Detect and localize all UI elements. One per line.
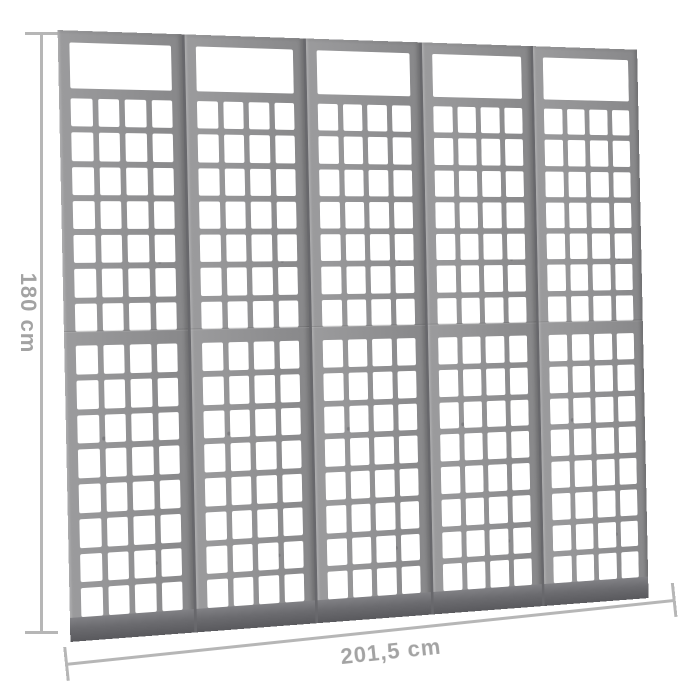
trellis-opening (617, 364, 635, 390)
trellis-opening (158, 412, 179, 441)
trellis-opening (350, 471, 370, 499)
trellis-opening (371, 299, 391, 326)
trellis-opening (225, 201, 246, 228)
trellis-opening (373, 404, 393, 432)
trellis-opening (202, 342, 223, 370)
trellis-opening (593, 295, 611, 321)
trellis-opening (592, 234, 610, 260)
trellis-opening (613, 172, 631, 198)
trellis-opening (282, 474, 302, 503)
trellis-opening (275, 169, 295, 196)
trellis-opening (259, 575, 280, 604)
trellis-opening (226, 268, 247, 296)
panel-top-window (432, 54, 522, 99)
trellis-opening (573, 397, 591, 424)
trellis-opening (466, 529, 485, 557)
trellis-opening (204, 444, 225, 473)
trellis-opening (258, 542, 279, 571)
divider-panel-4 (422, 42, 542, 614)
trellis-opening (490, 560, 509, 588)
trellis-opening (569, 203, 587, 229)
trellis-opening (76, 345, 98, 374)
trellis-opening (200, 268, 221, 296)
trellis-opening (571, 334, 589, 361)
trellis-opening (152, 134, 173, 162)
trellis-opening (231, 510, 252, 539)
trellis-opening (104, 379, 126, 408)
trellis-opening (590, 141, 608, 167)
trellis-opening (505, 139, 524, 165)
trellis-opening (512, 495, 531, 522)
trellis-opening (509, 367, 528, 394)
trellis-opening (153, 201, 174, 229)
trellis-opening (76, 380, 98, 409)
trellis-opening (350, 438, 370, 466)
trellis-opening (507, 265, 526, 291)
trellis-opening (254, 375, 275, 403)
trellis-opening (463, 401, 482, 428)
trellis-opening (489, 528, 508, 556)
trellis-opening (368, 169, 388, 196)
trellis-opening (481, 107, 500, 133)
trellis-opening (324, 406, 344, 434)
trellis-opening (347, 339, 367, 367)
upper-trellis-grid (544, 109, 634, 323)
trellis-opening (159, 446, 180, 475)
trellis-opening (377, 567, 397, 595)
trellis-opening (511, 431, 530, 458)
trellis-opening (226, 235, 247, 263)
trellis-opening (614, 234, 632, 260)
trellis-opening (131, 412, 153, 441)
trellis-opening (504, 108, 523, 134)
trellis-opening (157, 377, 178, 406)
trellis-opening (249, 102, 270, 130)
trellis-opening (549, 366, 568, 393)
trellis-opening (400, 533, 420, 561)
trellis-opening (75, 303, 97, 332)
trellis-opening (352, 536, 372, 564)
trellis-opening (489, 496, 508, 524)
trellis-opening (462, 337, 481, 364)
height-dimension-top-cap (25, 32, 58, 35)
trellis-opening (323, 340, 343, 368)
trellis-opening (326, 505, 346, 533)
trellis-opening (256, 475, 277, 504)
trellis-opening (78, 449, 100, 479)
trellis-opening (572, 366, 590, 393)
panel-top-window (317, 50, 411, 96)
trellis-opening (592, 265, 610, 291)
trellis-opening (206, 511, 227, 540)
trellis-opening (551, 429, 570, 456)
trellis-opening (257, 508, 278, 537)
trellis-opening (615, 295, 633, 321)
trellis-opening (549, 335, 568, 362)
trellis-opening (440, 434, 459, 462)
trellis-opening (589, 110, 607, 136)
trellis-opening (463, 369, 482, 396)
trellis-opening (100, 201, 122, 229)
trellis-opening (621, 551, 639, 578)
trellis-opening (130, 344, 152, 373)
trellis-opening (352, 569, 372, 598)
trellis-opening (203, 410, 224, 439)
upper-trellis-grid (433, 106, 526, 324)
trellis-opening (464, 433, 483, 460)
trellis-opening (513, 559, 532, 587)
trellis-opening (255, 408, 276, 436)
trellis-opening (277, 234, 297, 261)
trellis-opening (395, 266, 415, 293)
trellis-opening (133, 481, 155, 510)
trellis-opening (161, 582, 182, 612)
trellis-opening (401, 566, 421, 594)
trellis-opening (376, 535, 396, 563)
trellis-opening (465, 497, 484, 525)
height-dimension-label: 180 cm (15, 273, 41, 354)
trellis-opening (323, 373, 343, 401)
trellis-opening (458, 170, 477, 196)
trellis-opening (129, 302, 151, 330)
trellis-opening (573, 428, 591, 455)
trellis-opening (507, 234, 526, 260)
trellis-opening (200, 235, 221, 263)
trellis-opening (156, 343, 177, 372)
trellis-opening (599, 553, 617, 580)
trellis-opening (485, 297, 504, 323)
trellis-opening (128, 269, 150, 297)
trellis-opening (375, 502, 395, 530)
trellis-opening (439, 402, 458, 429)
trellis-opening (442, 531, 461, 559)
trellis-opening (223, 102, 244, 130)
trellis-opening (392, 137, 412, 164)
trellis-opening (487, 432, 506, 459)
trellis-opening (275, 136, 295, 163)
trellis-opening (133, 515, 155, 545)
trellis-opening (256, 442, 277, 471)
trellis-opening (482, 171, 501, 197)
trellis-opening (224, 168, 245, 196)
trellis-opening (594, 334, 612, 360)
trellis-opening (151, 100, 172, 128)
trellis-opening (457, 107, 476, 134)
trellis-opening (280, 374, 300, 402)
lower-trellis-grid (549, 333, 639, 583)
trellis-opening (612, 110, 630, 136)
trellis-opening (318, 104, 338, 131)
trellis-opening (159, 480, 180, 509)
trellis-opening (612, 141, 630, 167)
trellis-opening (483, 202, 502, 228)
trellis-opening (545, 140, 564, 166)
trellis-opening (104, 413, 126, 442)
trellis-opening (508, 297, 527, 323)
trellis-opening (153, 167, 174, 195)
trellis-opening (571, 296, 589, 322)
trellis-opening (206, 545, 227, 574)
trellis-opening (201, 301, 222, 329)
trellis-opening (394, 234, 414, 261)
trellis-opening (567, 140, 585, 166)
room-divider-tilt (58, 16, 700, 642)
trellis-opening (400, 501, 420, 529)
divider-panel-5 (533, 46, 649, 606)
trellis-opening (231, 476, 252, 505)
trellis-opening (348, 372, 368, 400)
trellis-opening (349, 405, 369, 433)
trellis-opening (510, 399, 529, 426)
trellis-opening (509, 335, 528, 362)
upper-trellis-grid (71, 98, 177, 331)
trellis-opening (443, 563, 462, 591)
trellis-opening (569, 234, 587, 260)
upper-trellis-grid (318, 104, 415, 327)
trellis-opening (207, 579, 228, 608)
trellis-opening (230, 443, 251, 472)
trellis-opening (325, 472, 345, 500)
trellis-opening (369, 202, 389, 229)
trellis-opening (126, 167, 148, 195)
trellis-opening (74, 269, 96, 297)
trellis-opening (511, 463, 530, 490)
trellis-opening (615, 264, 633, 290)
trellis-opening (224, 135, 245, 163)
trellis-opening (278, 300, 298, 328)
trellis-opening (396, 338, 416, 365)
trellis-opening (233, 577, 254, 606)
trellis-opening (371, 266, 391, 293)
trellis-opening (488, 464, 507, 491)
trellis-opening (460, 234, 479, 260)
trellis-opening (81, 587, 103, 617)
trellis-opening (127, 235, 149, 263)
trellis-opening (319, 169, 339, 196)
trellis-opening (439, 369, 458, 396)
trellis-opening (77, 414, 99, 443)
trellis-opening (198, 134, 219, 162)
trellis-opening (619, 458, 637, 485)
trellis-opening (461, 297, 480, 324)
divider-panel-1 (58, 30, 195, 642)
trellis-opening (591, 203, 609, 229)
room-divider-panels (58, 30, 649, 642)
trellis-opening (620, 489, 638, 516)
trellis-opening (613, 203, 631, 228)
trellis-opening (345, 234, 365, 261)
trellis-opening (107, 551, 129, 581)
trellis-opening (550, 398, 569, 425)
trellis-opening (154, 235, 175, 263)
trellis-opening (574, 460, 592, 487)
trellis-opening (277, 267, 297, 294)
trellis-opening (322, 299, 342, 326)
trellis-opening (441, 499, 460, 527)
trellis-opening (575, 491, 593, 518)
trellis-opening (343, 104, 363, 131)
trellis-opening (595, 365, 613, 392)
panel-top-window (196, 46, 294, 93)
trellis-opening (105, 448, 127, 477)
trellis-opening (568, 171, 586, 197)
divider-panel-3 (306, 38, 431, 623)
trellis-opening (547, 234, 566, 260)
trellis-opening (283, 507, 303, 536)
trellis-opening (252, 268, 273, 295)
trellis-opening (249, 135, 270, 163)
trellis-opening (465, 465, 484, 493)
trellis-opening (205, 477, 226, 506)
trellis-opening (351, 503, 371, 531)
trellis-opening (251, 235, 272, 262)
trellis-opening (545, 171, 564, 197)
lower-trellis-grid (323, 338, 421, 599)
trellis-opening (229, 375, 250, 403)
trellis-opening (618, 427, 636, 454)
trellis-opening (101, 269, 123, 297)
trellis-opening (398, 403, 418, 431)
trellis-opening (73, 201, 95, 229)
trellis-opening (198, 168, 219, 196)
trellis-opening (398, 436, 418, 464)
trellis-opening (570, 265, 588, 291)
trellis-opening (284, 574, 304, 603)
trellis-opening (434, 138, 453, 165)
trellis-opening (437, 266, 456, 293)
trellis-opening (229, 409, 250, 438)
trellis-opening (227, 301, 248, 329)
lower-trellis-grid (202, 341, 304, 608)
trellis-opening (368, 137, 388, 164)
trellis-opening (79, 483, 101, 513)
trellis-opening (505, 171, 524, 197)
trellis-opening (433, 106, 452, 133)
trellis-opening (125, 133, 147, 161)
trellis-opening (279, 341, 299, 369)
trellis-opening (79, 518, 101, 548)
trellis-opening (228, 342, 249, 370)
trellis-opening (486, 368, 505, 395)
trellis-opening (281, 441, 301, 469)
trellis-opening (346, 267, 366, 294)
trellis-opening (553, 524, 572, 551)
trellis-opening (98, 133, 120, 161)
trellis-opening (344, 169, 364, 196)
trellis-opening (459, 202, 478, 228)
product-dimension-diagram: 180 cm 201,5 cm (0, 0, 700, 700)
trellis-opening (546, 202, 565, 228)
trellis-opening (101, 235, 123, 263)
trellis-opening (134, 549, 156, 579)
trellis-opening (596, 428, 614, 455)
trellis-opening (598, 522, 616, 549)
upper-trellis-grid (197, 101, 299, 329)
trellis-opening (343, 137, 363, 164)
trellis-opening (437, 298, 456, 325)
trellis-opening (620, 520, 638, 547)
trellis-opening (103, 345, 125, 374)
trellis-opening (130, 378, 152, 407)
trellis-opening (616, 333, 634, 359)
trellis-opening (135, 583, 157, 613)
trellis-opening (155, 268, 176, 296)
trellis-opening (108, 585, 130, 615)
trellis-opening (597, 459, 615, 486)
panel-top-window (69, 42, 172, 90)
trellis-opening (553, 556, 571, 583)
trellis-opening (590, 172, 608, 198)
divider-panel-2 (185, 34, 316, 632)
trellis-opening (399, 468, 419, 496)
trellis-opening (320, 234, 340, 261)
trellis-opening (487, 400, 506, 427)
trellis-opening (98, 99, 120, 127)
trellis-opening (396, 298, 416, 325)
trellis-opening (318, 136, 338, 163)
trellis-opening (71, 98, 93, 127)
trellis-opening (544, 109, 563, 135)
height-dimension-bottom-cap (25, 631, 58, 634)
trellis-opening (367, 105, 387, 132)
trellis-opening (435, 170, 454, 196)
trellis-opening (280, 407, 300, 435)
trellis-opening (283, 540, 303, 569)
trellis-opening (481, 139, 500, 165)
trellis-opening (483, 234, 502, 260)
trellis-opening (80, 552, 102, 582)
trellis-opening (199, 201, 220, 229)
trellis-opening (393, 202, 413, 229)
trellis-opening (373, 371, 393, 399)
trellis-opening (370, 234, 390, 261)
lower-trellis-grid (438, 335, 532, 591)
trellis-opening (155, 302, 176, 330)
trellis-opening (161, 548, 182, 578)
trellis-opening (251, 201, 272, 228)
trellis-opening (325, 439, 345, 467)
trellis-opening (575, 523, 593, 550)
trellis-opening (320, 202, 340, 229)
trellis-opening (132, 447, 154, 476)
trellis-opening (99, 167, 121, 195)
room-divider (64, 30, 700, 642)
trellis-opening (551, 461, 570, 488)
trellis-opening (106, 516, 128, 546)
trellis-opening (347, 299, 367, 326)
trellis-opening (327, 538, 347, 567)
trellis-opening (467, 562, 486, 590)
trellis-opening (106, 482, 128, 512)
trellis-opening (375, 469, 395, 497)
trellis-opening (197, 101, 218, 129)
trellis-opening (250, 168, 271, 195)
trellis-opening (254, 341, 275, 369)
trellis-opening (484, 265, 503, 291)
trellis-opening (160, 514, 181, 543)
trellis-opening (203, 376, 224, 405)
trellis-opening (567, 109, 585, 135)
trellis-opening (513, 527, 532, 555)
trellis-opening (73, 235, 95, 263)
trellis-opening (328, 571, 348, 600)
trellis-opening (72, 167, 94, 195)
trellis-opening (438, 337, 457, 364)
trellis-opening (374, 437, 394, 465)
trellis-opening (391, 105, 411, 132)
trellis-opening (441, 466, 460, 494)
trellis-opening (595, 396, 613, 423)
